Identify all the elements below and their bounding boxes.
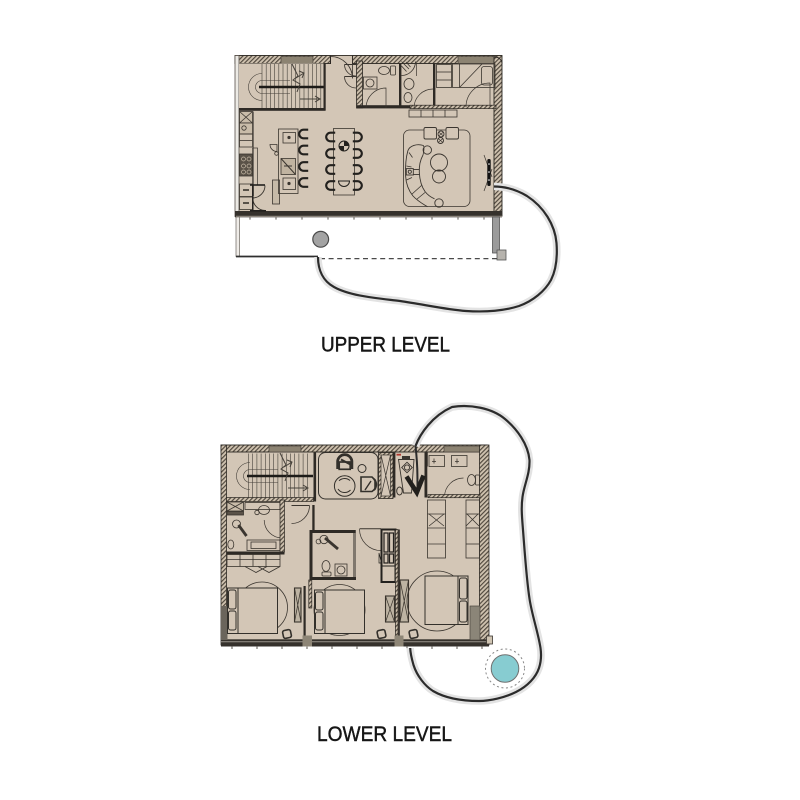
svg-text:UPPER LEVEL: UPPER LEVEL — [321, 334, 450, 357]
svg-text:LOWER LEVEL: LOWER LEVEL — [317, 723, 452, 746]
